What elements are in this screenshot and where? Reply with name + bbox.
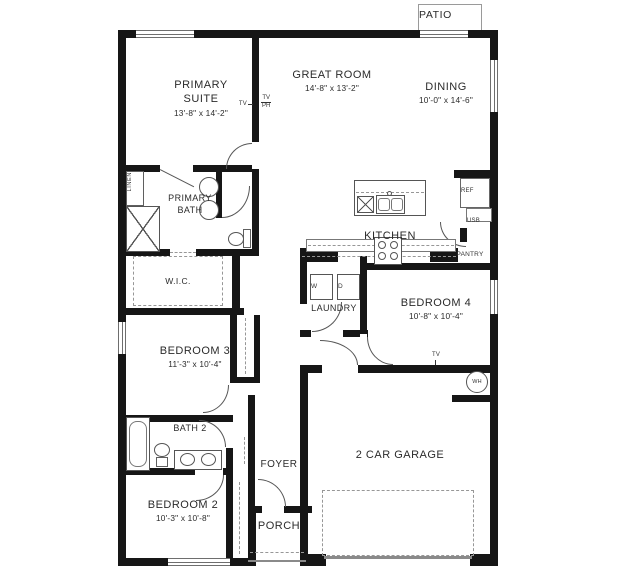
- ref-label: REF: [461, 188, 474, 194]
- dishwasher-icon: [357, 196, 374, 213]
- door-arc: [320, 340, 358, 365]
- garage-threshold-line: [324, 556, 472, 559]
- room-name: W.I.C.: [136, 276, 220, 287]
- room-laundry-label: LAUNDRY: [298, 303, 370, 315]
- usb-label: USB: [467, 218, 480, 224]
- room-dims: 13'-8" x 14'-2": [156, 108, 246, 119]
- room-name: LAUNDRY: [298, 303, 370, 315]
- water-heater: WH: [466, 371, 488, 393]
- wall: [248, 395, 255, 512]
- dryer-label: D: [338, 283, 343, 290]
- room-dims: 11'-3" x 10'-4": [136, 359, 254, 370]
- burner-icon: [378, 252, 386, 260]
- room-wic-label: W.I.C.: [136, 276, 220, 287]
- bathtub: [126, 417, 150, 471]
- room-primary-bath-label: PRIMARY BATH: [158, 193, 222, 216]
- wall: [254, 315, 260, 377]
- room-name: GREAT ROOM: [290, 68, 374, 82]
- patio-label: PATIO: [419, 9, 452, 21]
- sink-icon: [180, 453, 195, 466]
- wall: [252, 38, 259, 142]
- porch-step-line: [248, 560, 306, 562]
- tv-tick: [248, 104, 253, 105]
- toilet-icon: [228, 232, 244, 246]
- door-arc: [222, 186, 250, 218]
- dryer: D: [337, 274, 360, 300]
- wall: [452, 395, 498, 402]
- room-name: PRIMARY SUITE: [156, 78, 246, 107]
- room-garage-label: 2 CAR GARAGE: [320, 448, 480, 462]
- door-leaf: [160, 169, 194, 187]
- room-name: KITCHEN: [348, 229, 432, 243]
- room-name: BEDROOM 3: [136, 344, 254, 358]
- sink-basin-icon: [391, 198, 403, 211]
- door-opening: [252, 142, 259, 169]
- room-bedroom-3-label: BEDROOM 3 11'-3" x 10'-4": [136, 344, 254, 370]
- wall: [252, 168, 259, 256]
- wall: [470, 554, 498, 566]
- door-opening: [226, 422, 233, 448]
- wh-label: WH: [472, 379, 482, 385]
- room-name: BEDROOM 4: [378, 296, 494, 310]
- room-dims: 10'-8" x 10'-4": [378, 311, 494, 322]
- room-primary-suite-label: PRIMARY SUITE 13'-8" x 14'-2": [156, 78, 246, 118]
- room-name: PANTRY: [446, 251, 494, 259]
- toilet-icon: [154, 443, 170, 457]
- refrigerator: REF: [460, 178, 490, 208]
- room-bath-2-label: BATH 2: [162, 423, 218, 435]
- room-pantry-label: PANTRY: [446, 251, 494, 259]
- patio-slider-door: [420, 30, 468, 38]
- room-name: BATH 2: [162, 423, 218, 435]
- floor-plan: PATIO: [0, 0, 617, 582]
- room-dims: 14'-8" x 13'-2": [290, 83, 374, 94]
- garage-door: [322, 490, 474, 556]
- toilet-tank-icon: [156, 457, 168, 467]
- faucet-icon: [387, 191, 392, 196]
- shower: [126, 206, 160, 252]
- dashed-line: [244, 437, 245, 464]
- toilet-tank-icon: [243, 229, 251, 248]
- sink-basin-icon: [378, 198, 390, 211]
- tv-label: TV: [262, 95, 270, 102]
- room-great-room-label: GREAT ROOM 14'-8" x 13'-2": [290, 68, 374, 94]
- washer-label: W: [311, 283, 317, 290]
- room-foyer-label: FOYER: [256, 458, 302, 471]
- room-name: FOYER: [256, 458, 302, 471]
- wall: [232, 256, 240, 315]
- tv-tick: [435, 360, 436, 365]
- room-name: BEDROOM 2: [124, 498, 242, 512]
- door-arc: [367, 337, 393, 365]
- window: [168, 558, 230, 566]
- linen-label: LINEN: [127, 172, 133, 191]
- window: [136, 30, 194, 38]
- room-name: PRIMARY BATH: [158, 193, 222, 216]
- usb-outlet: USB: [466, 208, 492, 222]
- room-dims: 10'-3" x 10'-8": [124, 513, 242, 524]
- room-dims: 10'-0" x 14'-6": [400, 95, 492, 106]
- wall: [196, 249, 258, 256]
- window: [118, 322, 126, 354]
- room-name: DINING: [400, 80, 492, 94]
- wall: [118, 308, 244, 315]
- wall: [454, 170, 498, 178]
- tv-ph-fraction: TV PH: [261, 95, 271, 110]
- washer: W: [310, 274, 333, 300]
- room-name: PORCH: [250, 519, 308, 533]
- porch-edge-dashed: [250, 552, 304, 553]
- door-arc: [226, 143, 252, 169]
- burner-icon: [390, 252, 398, 260]
- wall: [118, 30, 126, 566]
- wall: [300, 365, 322, 373]
- room-name: 2 CAR GARAGE: [320, 448, 480, 462]
- room-dining-label: DINING 10'-0" x 14'-6": [400, 80, 492, 106]
- tv-label: TV: [428, 352, 444, 358]
- door-opening: [360, 334, 367, 365]
- door-arc: [203, 385, 229, 413]
- room-porch-label: PORCH: [250, 519, 308, 533]
- ph-label: PH: [261, 102, 271, 110]
- wall: [300, 256, 307, 304]
- room-bedroom-2-label: BEDROOM 2 10'-3" x 10'-8": [124, 498, 242, 524]
- front-door-arc: [258, 479, 286, 507]
- sink-icon: [201, 453, 216, 466]
- linen-closet: LINEN: [126, 171, 144, 206]
- dashed-line: [170, 252, 196, 253]
- wall: [230, 377, 260, 383]
- room-bedroom-4-label: BEDROOM 4 10'-8" x 10'-4": [378, 296, 494, 322]
- room-kitchen-label: KITCHEN: [348, 229, 432, 243]
